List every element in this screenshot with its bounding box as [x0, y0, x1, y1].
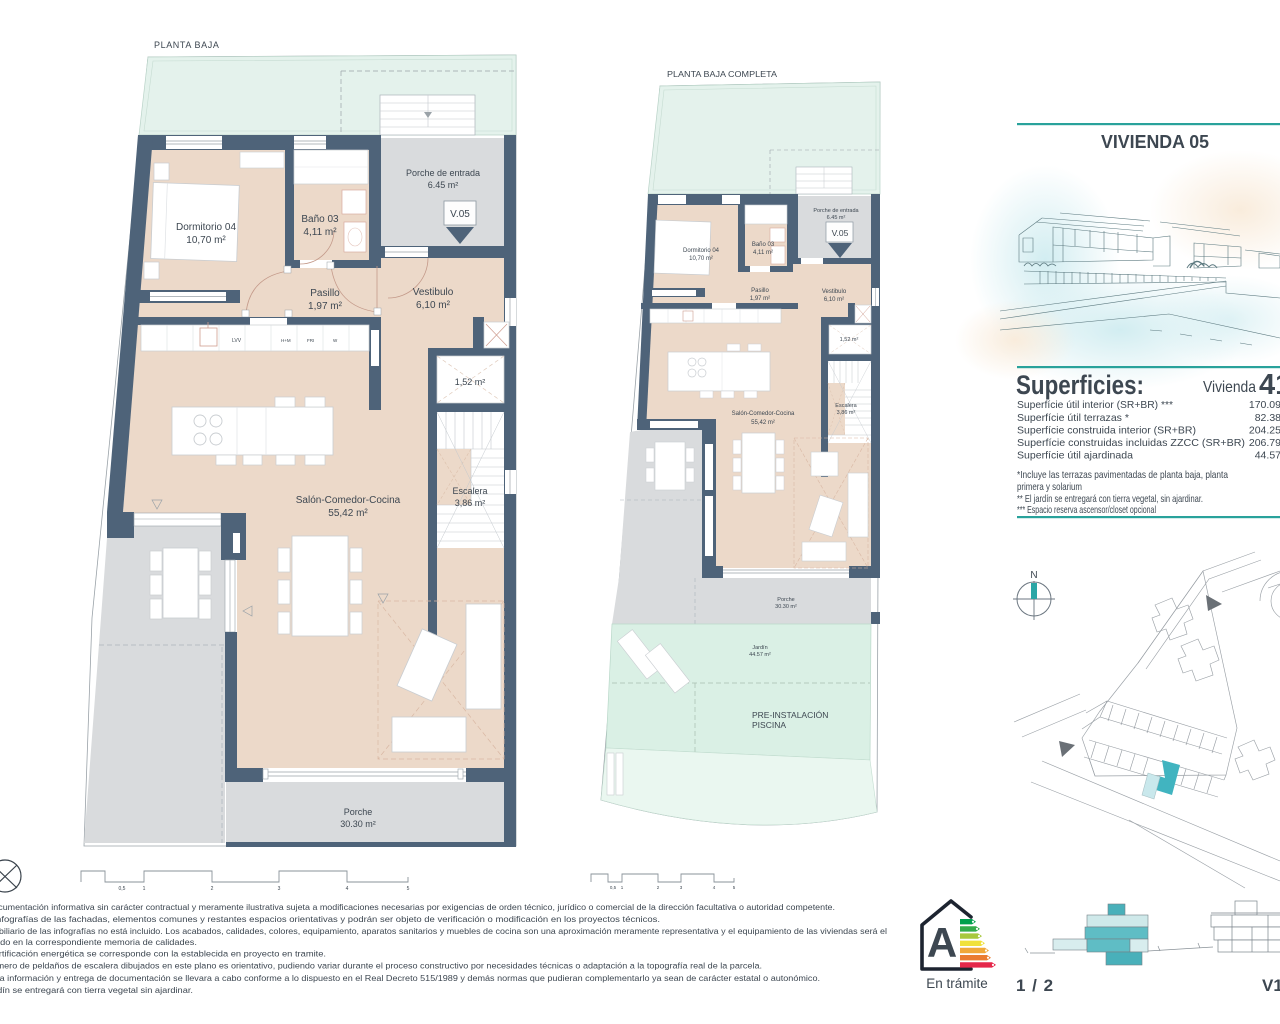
svg-text:Porche de entrada: Porche de entrada	[813, 208, 859, 214]
svg-text:La certificación energética se: La certificación energética se correspon…	[0, 949, 326, 959]
svg-text:5: 5	[733, 885, 736, 890]
svg-text:H+M: H+M	[281, 338, 291, 343]
svg-text:Superfície útil terrazas *: Superfície útil terrazas *	[1017, 412, 1129, 424]
svg-text:Escalera: Escalera	[835, 403, 857, 409]
svg-text:41: 41	[1259, 369, 1280, 401]
svg-text:V.05: V.05	[832, 228, 849, 238]
svg-text:Vestibulo: Vestibulo	[822, 289, 847, 295]
svg-text:Salón-Comedor-Cocina: Salón-Comedor-Cocina	[732, 411, 795, 417]
svg-text:1 / 2: 1 / 2	[1016, 976, 1054, 995]
svg-text:PLANTA BAJA: PLANTA BAJA	[154, 40, 219, 50]
svg-text:44.57: 44.57	[1255, 450, 1280, 462]
svg-text:4,11 m²: 4,11 m²	[303, 227, 337, 238]
svg-text:Salón-Comedor-Cocina: Salón-Comedor-Cocina	[296, 495, 401, 506]
svg-text:Pasillo: Pasillo	[310, 288, 340, 299]
svg-text:V.05: V.05	[450, 209, 470, 220]
svg-text:3,86 m²: 3,86 m²	[837, 410, 856, 416]
svg-text:204.25: 204.25	[1249, 425, 1280, 437]
svg-text:1: 1	[143, 886, 146, 892]
svg-text:5: 5	[407, 886, 410, 892]
svg-text:primera y solarium: primera y solarium	[1017, 481, 1082, 493]
svg-text:Porche de entrada: Porche de entrada	[406, 168, 480, 178]
svg-text:PRE-INSTALACIÓN: PRE-INSTALACIÓN	[752, 710, 828, 720]
svg-text:1,52 m²: 1,52 m²	[455, 377, 486, 387]
svg-text:44.57 m²: 44.57 m²	[749, 652, 771, 658]
svg-text:6.45 m²: 6.45 m²	[827, 215, 846, 221]
svg-text:6.45 m²: 6.45 m²	[428, 180, 459, 190]
svg-text:6,10 m²: 6,10 m²	[824, 297, 844, 303]
svg-text:2: 2	[657, 885, 660, 890]
svg-text:Jardín: Jardín	[752, 645, 767, 651]
svg-text:55,42 m²: 55,42 m²	[751, 420, 775, 426]
svg-text:2: 2	[211, 886, 214, 892]
svg-text:30.30 m²: 30.30 m²	[340, 819, 376, 829]
svg-text:0,5: 0,5	[610, 885, 617, 890]
svg-text:Las infografías de las fachada: Las infografías de las fachadas, element…	[0, 914, 660, 924]
svg-text:El mobiliario de las infografí: El mobiliario de las infografías no está…	[0, 926, 887, 936]
svg-text:LVV: LVV	[232, 338, 242, 344]
svg-text:4: 4	[346, 886, 349, 892]
svg-text:Porche: Porche	[777, 597, 794, 603]
svg-text:FRI: FRI	[307, 338, 314, 343]
svg-text:Superficies:: Superficies:	[1016, 370, 1144, 400]
svg-text:Superfície útil ajardinada: Superfície útil ajardinada	[1017, 450, 1133, 462]
svg-text:Vestibulo: Vestibulo	[413, 287, 454, 298]
svg-text:Pasillo: Pasillo	[751, 288, 769, 294]
svg-text:PISCINA: PISCINA	[752, 720, 786, 730]
svg-text:Dormitorio 04: Dormitorio 04	[683, 248, 720, 254]
svg-text:1,97 m²: 1,97 m²	[308, 301, 343, 312]
svg-text:Baño 03: Baño 03	[752, 242, 775, 248]
svg-text:En trámite: En trámite	[926, 976, 988, 991]
svg-text:Superfície útil interior (SR+B: Superfície útil interior (SR+BR) ***	[1017, 399, 1173, 411]
svg-text:3,86 m²: 3,86 m²	[455, 498, 486, 508]
svg-text:*** Espacio reserva ascensor/c: *** Espacio reserva ascensor/closet opci…	[1017, 504, 1156, 516]
svg-text:*Incluye las terrazas paviment: *Incluye las terrazas pavimentadas de pl…	[1017, 469, 1228, 481]
svg-text:6,10 m²: 6,10 m²	[416, 300, 451, 311]
svg-text:A: A	[927, 919, 957, 966]
svg-text:El jardín se entregará con tie: El jardín se entregará con tierra vegeta…	[0, 985, 193, 995]
svg-text:Dormitorio 04: Dormitorio 04	[176, 222, 236, 233]
svg-text:Para la información y entrega: Para la información y entrega de documen…	[0, 973, 820, 983]
svg-text:3: 3	[680, 885, 683, 890]
svg-text:1,52 m²: 1,52 m²	[840, 337, 859, 343]
svg-text:PLANTA BAJA COMPLETA: PLANTA BAJA COMPLETA	[667, 69, 777, 79]
svg-text:1,97 m²: 1,97 m²	[750, 296, 770, 302]
svg-text:Escalera: Escalera	[452, 486, 487, 496]
svg-text:10,70 m²: 10,70 m²	[186, 235, 226, 246]
svg-text:Porche: Porche	[344, 807, 373, 817]
svg-text:El número de peldaños de escal: El número de peldaños de escalera dibuja…	[0, 961, 762, 971]
svg-text:N: N	[1030, 570, 1037, 581]
svg-text:Superfície construida interior: Superfície construida interior (SR+BR)	[1017, 425, 1196, 437]
svg-text:VIVIENDA 05: VIVIENDA 05	[1101, 132, 1209, 152]
svg-text:10,70 m²: 10,70 m²	[689, 256, 713, 262]
svg-text:0,5: 0,5	[119, 886, 126, 892]
svg-text:4: 4	[713, 885, 716, 890]
svg-text:Superfície construidas incluid: Superfície construidas incluidas ZZCC (S…	[1017, 437, 1245, 449]
svg-text:Baño 03: Baño 03	[301, 214, 339, 225]
svg-text:4,11 m²: 4,11 m²	[753, 250, 773, 256]
svg-text:55,42 m²: 55,42 m²	[328, 508, 368, 519]
svg-text:82.38: 82.38	[1255, 412, 1280, 424]
svg-text:30.30 m²: 30.30 m²	[775, 604, 797, 610]
svg-text:La documentación informativa s: La documentación informativa sin carácte…	[0, 902, 835, 912]
svg-text:V15: V15	[1262, 976, 1280, 995]
svg-text:170.09: 170.09	[1249, 399, 1280, 411]
svg-text:Vivienda: Vivienda	[1203, 379, 1256, 396]
svg-text:indicado en la correspondiente: indicado en la correspondiente memoria d…	[0, 937, 197, 947]
svg-text:206.79: 206.79	[1249, 437, 1280, 449]
svg-text:1: 1	[621, 885, 624, 890]
svg-text:3: 3	[278, 886, 281, 892]
